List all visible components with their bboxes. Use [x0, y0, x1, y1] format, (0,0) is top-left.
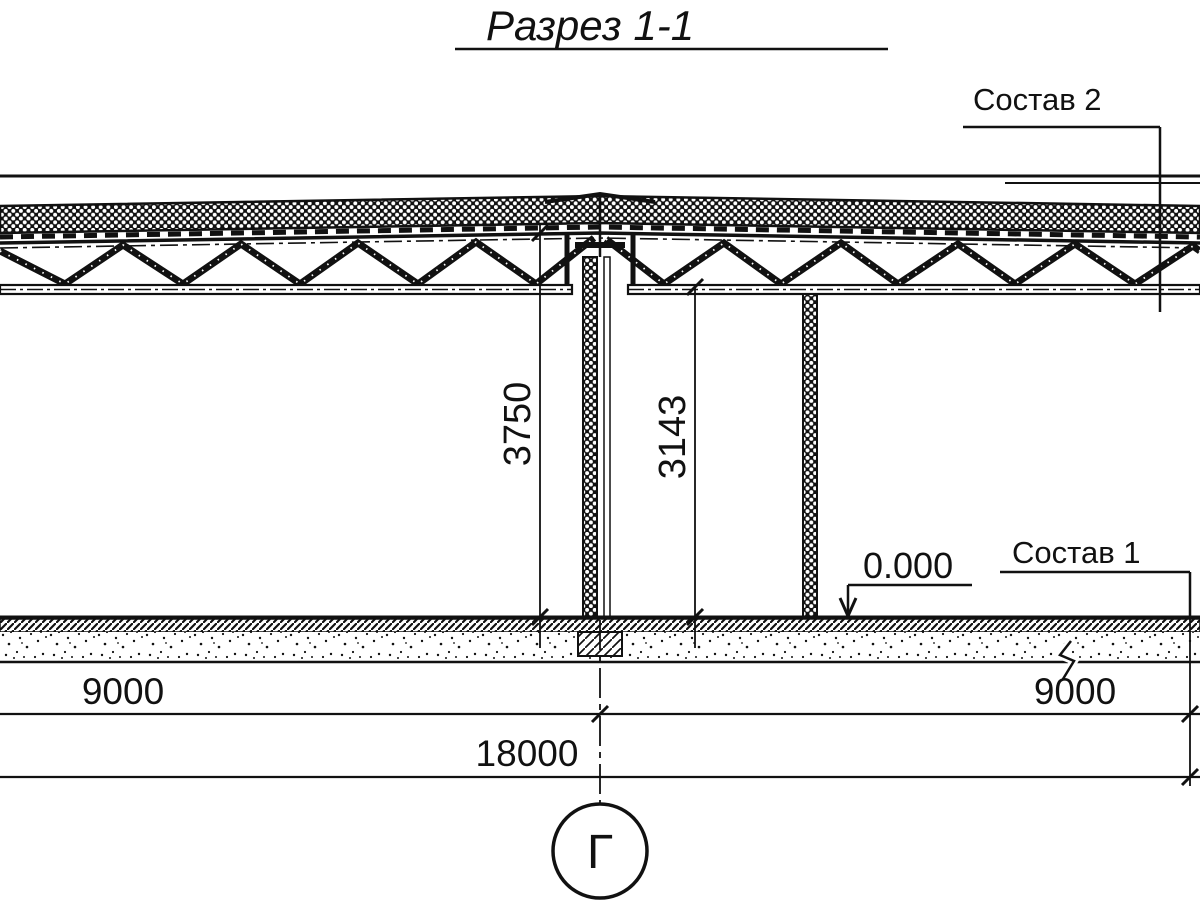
drawing-title: Разрез 1-1 — [455, 2, 888, 49]
column-center-twin — [604, 257, 610, 617]
dim-value-span-right: 9000 — [1034, 671, 1116, 712]
dim-value-span-total: 18000 — [476, 733, 579, 774]
truss-bottom-chords — [0, 285, 1200, 294]
axis-letter: Г — [587, 826, 613, 879]
dim-value-3143: 3143 — [652, 395, 694, 480]
columns — [583, 257, 817, 617]
drawing-canvas: Разрез 1-1 — [0, 0, 1200, 900]
composition-2-label: Состав 2 — [973, 82, 1102, 117]
column-right — [803, 294, 817, 617]
elevation-mark: 0.000 — [840, 545, 972, 616]
dim-value-3750: 3750 — [497, 382, 539, 467]
truss-web-left — [0, 238, 594, 284]
section-drawing: Разрез 1-1 — [0, 0, 1200, 900]
dim-value-span-left: 9000 — [82, 671, 164, 712]
column-center — [583, 257, 597, 617]
callout-composition-1: Состав 1 — [1000, 535, 1190, 616]
roof-top-lines — [0, 176, 1200, 183]
elevation-value: 0.000 — [863, 545, 953, 586]
dimension-3143: 3143 — [652, 279, 703, 648]
page-title: Разрез 1-1 — [486, 2, 694, 49]
ridge-connection-plate — [575, 242, 625, 248]
composition-1-label: Состав 1 — [1012, 535, 1141, 570]
